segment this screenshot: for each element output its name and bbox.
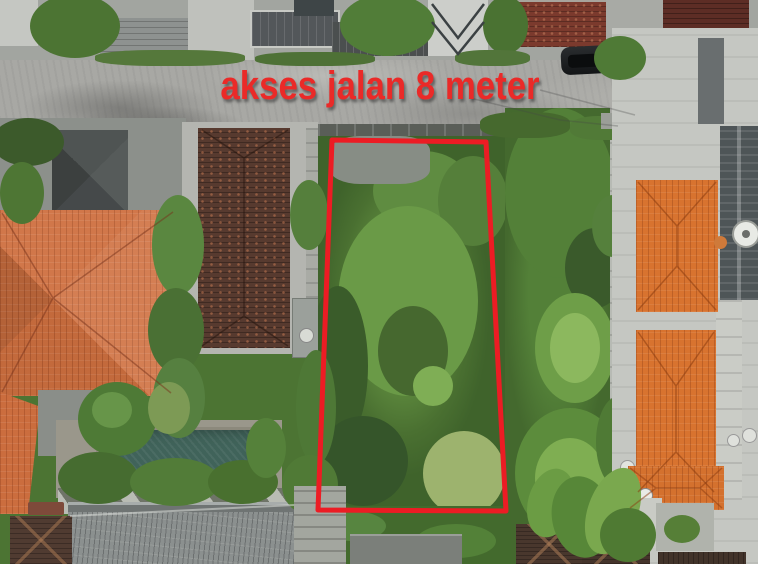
dark-structure	[698, 38, 724, 124]
dark-hut-roof	[294, 0, 334, 16]
basket	[714, 236, 727, 249]
road-access-caption: akses jalan 8 meter	[196, 60, 565, 112]
shrub	[246, 418, 286, 478]
debris-patch	[330, 136, 430, 184]
gray-shingle-roof	[68, 502, 296, 564]
big-tree	[92, 392, 132, 428]
water-heater	[299, 328, 314, 343]
banana-tree	[550, 313, 600, 383]
land-plot-vegetation	[318, 136, 508, 514]
orange-hip-roof-right-1	[636, 180, 718, 312]
lawn	[148, 382, 190, 434]
garden-bench	[28, 502, 64, 515]
slate-roof	[720, 126, 758, 300]
ac-unit	[727, 434, 740, 447]
dark-brown-roof	[10, 516, 72, 564]
tree-over-car	[594, 36, 646, 80]
ac-unit	[742, 428, 757, 443]
shrub	[413, 366, 453, 406]
tree-canopy	[296, 350, 336, 465]
orange-hip-roof-left	[0, 210, 176, 396]
gable-house	[428, 0, 488, 56]
flowering-tree	[152, 195, 204, 295]
tree-canopy	[290, 180, 328, 250]
planter	[664, 515, 700, 543]
stone-steps	[294, 486, 346, 564]
shed-roof	[350, 534, 462, 564]
flowering-bush	[423, 431, 505, 514]
flowering-bush	[130, 458, 220, 506]
aerial-photo: akses jalan 8 meter	[0, 0, 758, 564]
brown-hip-roof	[198, 128, 290, 348]
dark-roof-bottom-right	[658, 552, 746, 564]
tank-cap	[742, 230, 750, 238]
maroon-tile-roof	[516, 0, 608, 47]
shrub	[58, 452, 138, 504]
banana-tree	[600, 508, 656, 562]
orange-roof-wing	[0, 392, 40, 514]
shrub	[0, 162, 44, 224]
hedgerow	[480, 112, 570, 138]
